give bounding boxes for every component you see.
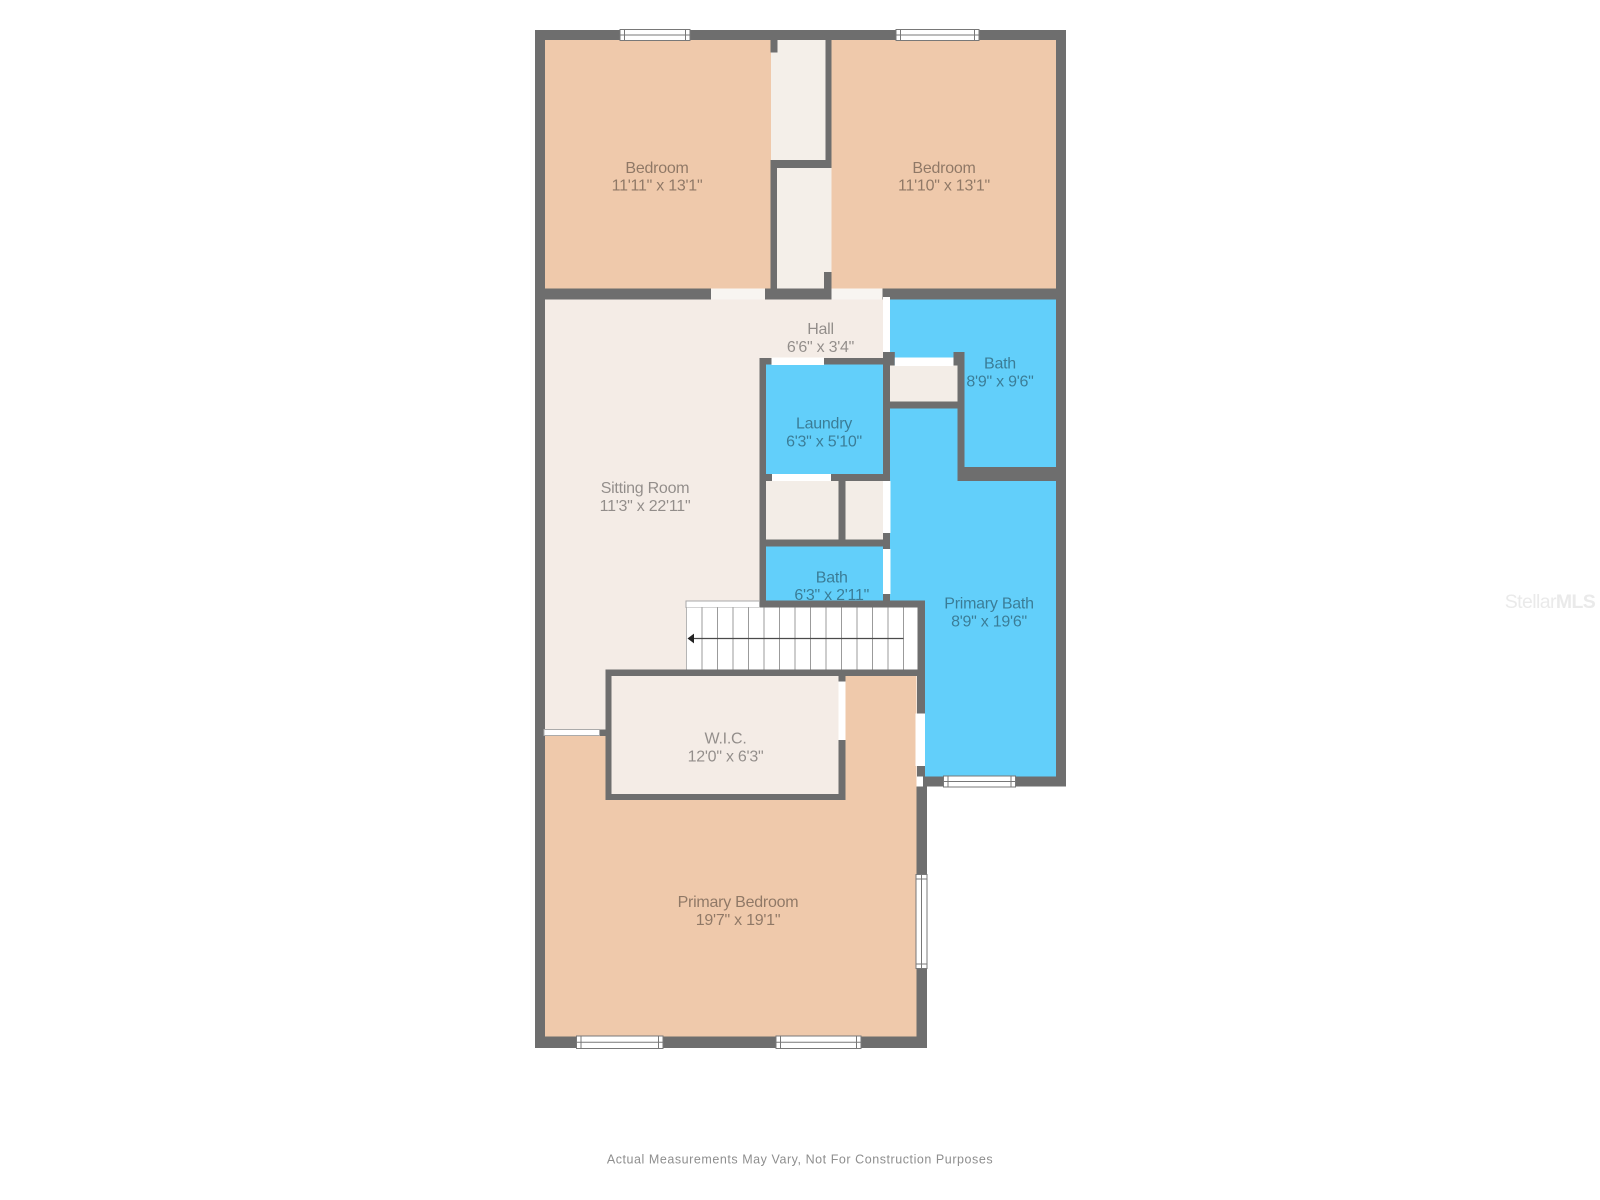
svg-text:Laundry: Laundry (796, 416, 852, 433)
svg-text:Bath: Bath (816, 570, 848, 587)
svg-text:Primary Bath: Primary Bath (944, 596, 1033, 613)
svg-text:19'7" x 19'1": 19'7" x 19'1" (696, 912, 781, 929)
svg-text:Hall: Hall (807, 321, 834, 338)
svg-text:12'0" x 6'3": 12'0" x 6'3" (688, 749, 764, 766)
svg-text:W.I.C.: W.I.C. (704, 731, 746, 748)
svg-text:11'3" x 22'11": 11'3" x 22'11" (600, 498, 691, 515)
svg-text:StellarMLS: StellarMLS (1505, 591, 1596, 613)
svg-text:Bath: Bath (984, 356, 1016, 373)
svg-text:Bedroom: Bedroom (625, 160, 688, 177)
svg-text:Bedroom: Bedroom (912, 160, 975, 177)
svg-text:8'9" x 19'6": 8'9" x 19'6" (951, 614, 1027, 631)
svg-text:11'10" x 13'1": 11'10" x 13'1" (898, 178, 990, 195)
svg-text:11'11" x 13'1": 11'11" x 13'1" (612, 178, 703, 195)
svg-text:6'3" x 5'10": 6'3" x 5'10" (786, 434, 862, 451)
svg-text:Primary Bedroom: Primary Bedroom (678, 894, 799, 911)
svg-text:6'3" x 2'11": 6'3" x 2'11" (794, 587, 869, 604)
svg-text:Sitting Room: Sitting Room (601, 480, 690, 497)
svg-text:6'6" x 3'4": 6'6" x 3'4" (787, 339, 854, 356)
svg-text:Actual Measurements May Vary,: Actual Measurements May Vary, Not For Co… (607, 1153, 993, 1167)
svg-text:8'9" x 9'6": 8'9" x 9'6" (966, 374, 1033, 391)
